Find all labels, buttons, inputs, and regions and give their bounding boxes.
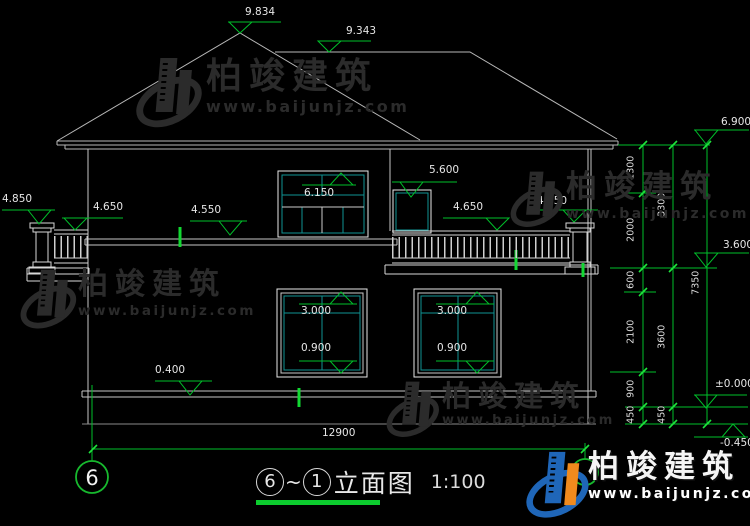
title-block: 6 ~ 1 立面图 1:100 xyxy=(256,464,486,500)
elev-ground-floor: ±0.000 xyxy=(715,379,750,390)
elev-outdoor: -0.450 xyxy=(720,438,750,449)
dim-3600: 3600 xyxy=(657,315,667,359)
watermark-left: 柏竣建筑 www.baijunjz.com xyxy=(22,268,256,336)
baijun-watermark-icon xyxy=(388,380,436,434)
axis-end-bubble: 1 xyxy=(303,468,331,496)
watermark-url: www.baijunjz.com xyxy=(442,413,615,428)
logo-brand: 柏竣建筑 xyxy=(588,450,750,486)
right-balusters xyxy=(392,237,570,258)
watermark-url: www.baijunjz.com xyxy=(566,206,749,222)
elev-win2-sill: 0.900 xyxy=(437,343,467,354)
logo-url: www.baijunjz.com xyxy=(588,486,750,502)
watermark-brand: 柏竣建筑 xyxy=(206,56,409,97)
axis-tilde: ~ xyxy=(285,470,302,494)
first-floor-window-left xyxy=(277,289,367,377)
second-floor-door xyxy=(278,171,368,237)
elev-roof-ridge: 9.343 xyxy=(346,26,376,37)
baijun-watermark-icon xyxy=(138,56,198,124)
watermark-top: 柏竣建筑 www.baijunjz.com xyxy=(138,56,409,124)
dim-600: 600 xyxy=(626,258,636,302)
elev-upper-window: 5.600 xyxy=(429,165,459,176)
elev-floor-band: 4.550 xyxy=(191,205,221,216)
watermark-url: www.baijunjz.com xyxy=(206,97,409,116)
elev-left-newel: 4.850 xyxy=(2,194,32,205)
elev-win2-top: 3.000 xyxy=(437,306,467,317)
dim-2100: 2100 xyxy=(626,310,636,354)
drawing-scale: 1:100 xyxy=(431,471,486,493)
elev-left-rail: 4.650 xyxy=(93,202,123,213)
baijun-logo-icon xyxy=(528,450,585,515)
watermark-right: 柏竣建筑 www.baijunjz.com xyxy=(512,170,749,238)
elevation-drawing-canvas: 9.834 9.343 6.900 3.600 ±0.000 -0.450 4.… xyxy=(0,0,750,526)
dim-450-a: 450 xyxy=(626,393,636,437)
watermark-bottom: 柏竣建筑 www.baijunjz.com xyxy=(388,380,615,448)
grid-bubble-left-label: 6 xyxy=(84,466,100,490)
dim-450-b: 450 xyxy=(657,393,667,437)
drawing-title: 立面图 xyxy=(334,464,415,500)
watermark-brand: 柏竣建筑 xyxy=(566,170,749,206)
elev-win1-sill: 0.900 xyxy=(301,343,331,354)
elev-door-top: 6.150 xyxy=(304,188,334,199)
watermark-brand: 柏竣建筑 xyxy=(78,268,256,303)
elev-win1-top: 3.000 xyxy=(301,306,331,317)
axis-start-bubble: 6 xyxy=(256,468,284,496)
left-balusters xyxy=(54,236,88,258)
first-floor-window-right xyxy=(414,289,501,377)
watermark-url: www.baijunjz.com xyxy=(78,303,256,319)
baijun-logo: 柏竣建筑 www.baijunjz.com xyxy=(528,450,750,518)
title-underline xyxy=(256,500,380,505)
dim-12900: 12900 xyxy=(322,428,355,439)
baijun-watermark-icon xyxy=(512,170,560,224)
elev-balcony-rail: 4.650 xyxy=(453,202,483,213)
dim-7350: 7350 xyxy=(691,261,701,305)
baijun-watermark-icon xyxy=(22,268,73,326)
elev-plinth: 0.400 xyxy=(155,365,185,376)
elev-second-floor: 3.600 xyxy=(723,240,750,251)
watermark-brand: 柏竣建筑 xyxy=(442,380,615,413)
elev-roof-peak: 9.834 xyxy=(245,7,275,18)
elev-eave: 6.900 xyxy=(721,117,750,128)
